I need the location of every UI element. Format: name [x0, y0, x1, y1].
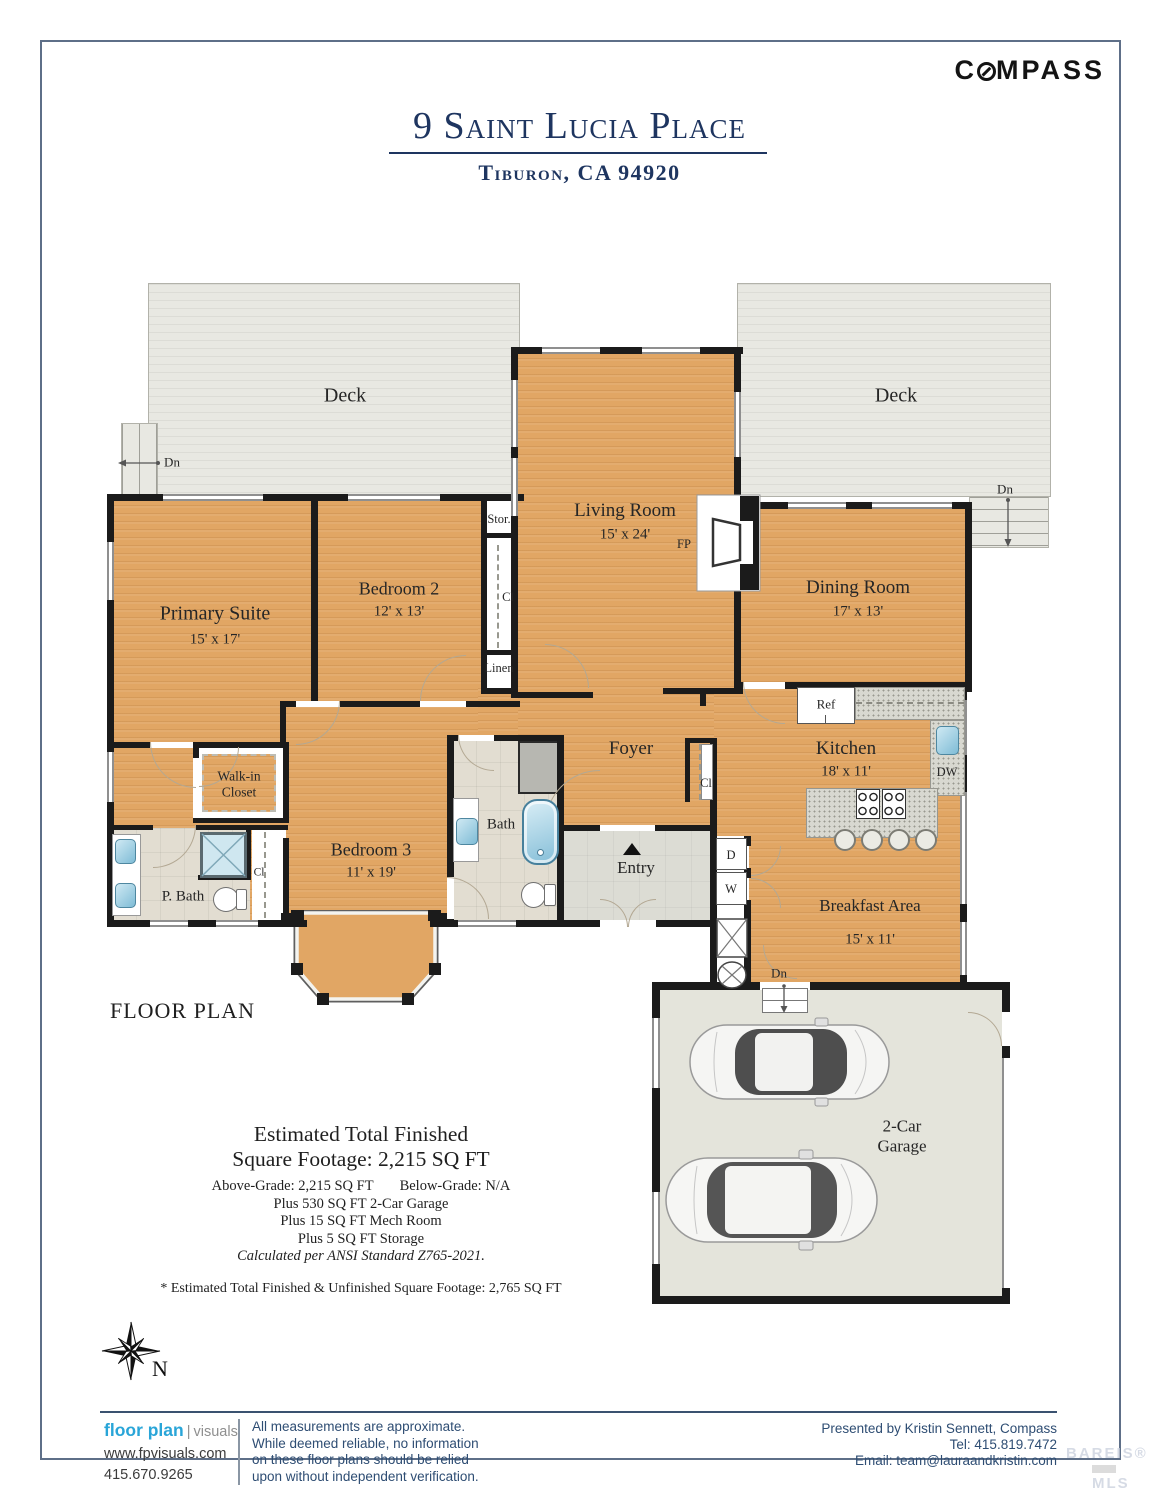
room-label-dining: Dining Room: [806, 577, 910, 599]
down-arrow-left-deck: [116, 455, 162, 471]
fireplace: [696, 494, 762, 592]
mech-fan: [716, 960, 748, 990]
sqft-above-grade: Above-Grade: 2,215 SQ FT: [212, 1178, 374, 1194]
wall: [685, 738, 690, 802]
window-opening: [960, 922, 967, 975]
room-dims-bedroom2: 12' x 13': [374, 603, 424, 620]
stool: [888, 829, 910, 851]
watermark-line1: BAREIS®: [1066, 1446, 1152, 1461]
room-dims-primary: 15' x 17': [190, 631, 240, 648]
presenter-name: Presented by Kristin Sennett, Compass: [707, 1421, 1057, 1437]
tub-drain: [537, 849, 544, 856]
closet-rod-line: [497, 545, 499, 648]
watermark-bar: [1092, 1465, 1116, 1473]
label-linen: Linen: [484, 661, 513, 675]
window-opening: [163, 494, 263, 501]
sqft-title-line1: Estimated Total Finished: [130, 1122, 592, 1147]
sqft-ansi-line: Calculated per ANSI Standard Z765-2021.: [130, 1248, 592, 1266]
wall: [107, 825, 153, 830]
sqft-storage-line: Plus 5 SQ FT Storage: [130, 1231, 592, 1249]
label-down-left-deck: Dn: [164, 456, 180, 471]
footer-presenter: Presented by Kristin Sennett, Compass Te…: [707, 1421, 1057, 1469]
label-refrigerator: Ref: [817, 698, 836, 713]
wall: [652, 1296, 1010, 1304]
bareis-mls-watermark: BAREIS® MLS: [1066, 1446, 1152, 1491]
room-label-breakfast: Breakfast Area: [815, 896, 925, 916]
window-opening: [788, 502, 846, 509]
room-label-bedroom3: Bedroom 3: [331, 840, 412, 861]
label-down-garage: Dn: [771, 967, 787, 982]
window-opening: [511, 380, 518, 447]
stool: [834, 829, 856, 851]
footer-vertical-divider: [238, 1419, 240, 1485]
wall: [283, 742, 289, 820]
room-label-foyer: Foyer: [609, 738, 653, 760]
window-opening: [542, 347, 600, 354]
wall: [283, 838, 289, 927]
label-cl: Cl: [700, 776, 712, 790]
square-footage-block: Estimated Total Finished Square Footage:…: [130, 1122, 592, 1297]
car-icon: [687, 1016, 895, 1108]
brand-name: floor plan: [104, 1420, 184, 1440]
stove: [856, 789, 906, 819]
toilet-tank: [544, 884, 556, 906]
label-washer: W: [725, 882, 737, 896]
wall: [481, 650, 517, 655]
footer-disclaimer: All measurements are approximate. While …: [252, 1419, 479, 1485]
wall: [511, 692, 593, 698]
car-icon: [663, 1148, 883, 1252]
room-label-deck-left: Deck: [324, 385, 366, 408]
wall: [652, 982, 1010, 990]
label-fireplace: FP: [677, 537, 691, 551]
bath-sink: [456, 818, 478, 845]
sqft-title-line2: Square Footage: 2,215 SQ FT: [130, 1147, 592, 1172]
presenter-email[interactable]: Email: team@lauraandkristin.com: [707, 1453, 1057, 1469]
wall: [481, 688, 517, 694]
door-opening: [600, 825, 655, 831]
wall: [193, 818, 289, 823]
sqft-garage-line: Plus 530 SQ FT 2-Car Garage: [130, 1196, 592, 1214]
stool: [915, 829, 937, 851]
footer-brand: floor plan|visuals www.fpvisuals.com 415…: [104, 1420, 238, 1483]
room-label-entry: Entry: [617, 858, 655, 878]
stool: [861, 829, 883, 851]
wall: [280, 701, 286, 748]
room-dims-breakfast: 15' x 11': [845, 931, 895, 948]
wall: [734, 585, 741, 692]
window-opening: [107, 542, 114, 600]
window-opening: [652, 1192, 660, 1264]
disclaimer-line: on these floor plans should be relied: [252, 1452, 479, 1469]
room-label-kitchen: Kitchen: [816, 738, 876, 760]
window-opening: [348, 494, 440, 501]
label-dishwasher: DW: [937, 765, 958, 779]
floor-plan-label: FLOOR PLAN: [110, 998, 255, 1024]
down-arrow-garage: [777, 984, 791, 1014]
window-opening: [734, 392, 741, 457]
label-stor: Stor.: [487, 512, 510, 526]
sqft-grades: Above-Grade: 2,215 SQ FTBelow-Grade: N/A: [130, 1178, 592, 1196]
footer-divider: [100, 1411, 1057, 1413]
wall: [196, 825, 288, 830]
disclaimer-line: All measurements are approximate.: [252, 1419, 479, 1436]
entry-marker-icon: [623, 843, 641, 855]
watermark-line2: MLS: [1066, 1461, 1152, 1491]
floor-plan-page: CMPASS 9 Saint Lucia Place Tiburon, CA 9…: [0, 0, 1159, 1499]
bath-closet-gray: [518, 741, 560, 794]
disclaimer-line: While deemed reliable, no information: [252, 1436, 479, 1453]
brand-separator: |: [184, 1424, 194, 1440]
north-label: N: [152, 1356, 168, 1382]
sqft-below-grade: Below-Grade: N/A: [400, 1178, 511, 1194]
door-opening: [420, 701, 466, 707]
door-opening: [1002, 1012, 1010, 1046]
room-label-bedroom2: Bedroom 2: [359, 579, 440, 600]
watermark-mls: MLS: [1092, 1475, 1130, 1492]
toilet-tank: [236, 889, 247, 910]
window-opening: [642, 347, 700, 354]
toilet: [521, 882, 546, 908]
bay-window: [286, 910, 446, 1008]
room-label-pbath: P. Bath: [162, 888, 205, 905]
window-opening: [960, 792, 967, 904]
refrigerator-divider: [825, 715, 826, 724]
wall: [107, 920, 307, 927]
wall: [965, 502, 972, 692]
pbath-sink: [115, 883, 136, 908]
upper-cabinet-line: [856, 702, 964, 704]
wall: [430, 913, 447, 924]
window-opening: [511, 458, 518, 516]
label-dryer: D: [726, 848, 735, 862]
window-opening: [652, 1018, 660, 1088]
wall: [700, 692, 706, 706]
room-dims-dining: 17' x 13': [833, 603, 883, 620]
wall: [311, 494, 318, 707]
garage-door-opening: [1002, 1058, 1010, 1288]
disclaimer-line: upon without independent verification.: [252, 1469, 479, 1486]
presenter-tel: Tel: 415.819.7472: [707, 1437, 1057, 1453]
pbath-sink: [115, 839, 136, 864]
brand-website[interactable]: www.fpvisuals.com: [104, 1446, 238, 1462]
mech-chase: [716, 918, 748, 958]
window-opening: [458, 920, 516, 927]
room-label-living: Living Room: [574, 500, 676, 522]
room-label-primary: Primary Suite: [160, 603, 271, 626]
window-opening: [150, 920, 188, 927]
room-dims-bedroom3: 11' x 19': [346, 864, 396, 881]
label-cl: Cl: [502, 590, 514, 604]
label-cl: Cl: [254, 866, 265, 879]
room-label-walkin: Walk-in Closet: [202, 768, 276, 799]
room-dims-kitchen: 18' x 11': [821, 763, 871, 780]
label-down-right-deck: Dn: [997, 483, 1013, 498]
down-arrow-right-deck: [1000, 496, 1016, 548]
room-label-deck-right: Deck: [875, 385, 917, 408]
brand-suffix: visuals: [194, 1424, 238, 1440]
window-opening: [872, 502, 952, 509]
shower: [200, 832, 247, 878]
window-opening: [107, 752, 114, 802]
sqft-mech-line: Plus 15 SQ FT Mech Room: [130, 1213, 592, 1231]
room-label-garage: 2-Car Garage: [856, 1116, 948, 1155]
room-dims-living: 15' x 24': [600, 526, 650, 543]
wall: [481, 533, 517, 538]
room-label-bath: Bath: [487, 816, 515, 833]
kitchen-sink: [936, 726, 959, 755]
window-opening: [216, 920, 258, 927]
brand-phone: 415.670.9265: [104, 1467, 238, 1483]
sqft-footnote: * Estimated Total Finished & Unfinished …: [130, 1281, 592, 1297]
closet-shelf: [701, 744, 713, 800]
